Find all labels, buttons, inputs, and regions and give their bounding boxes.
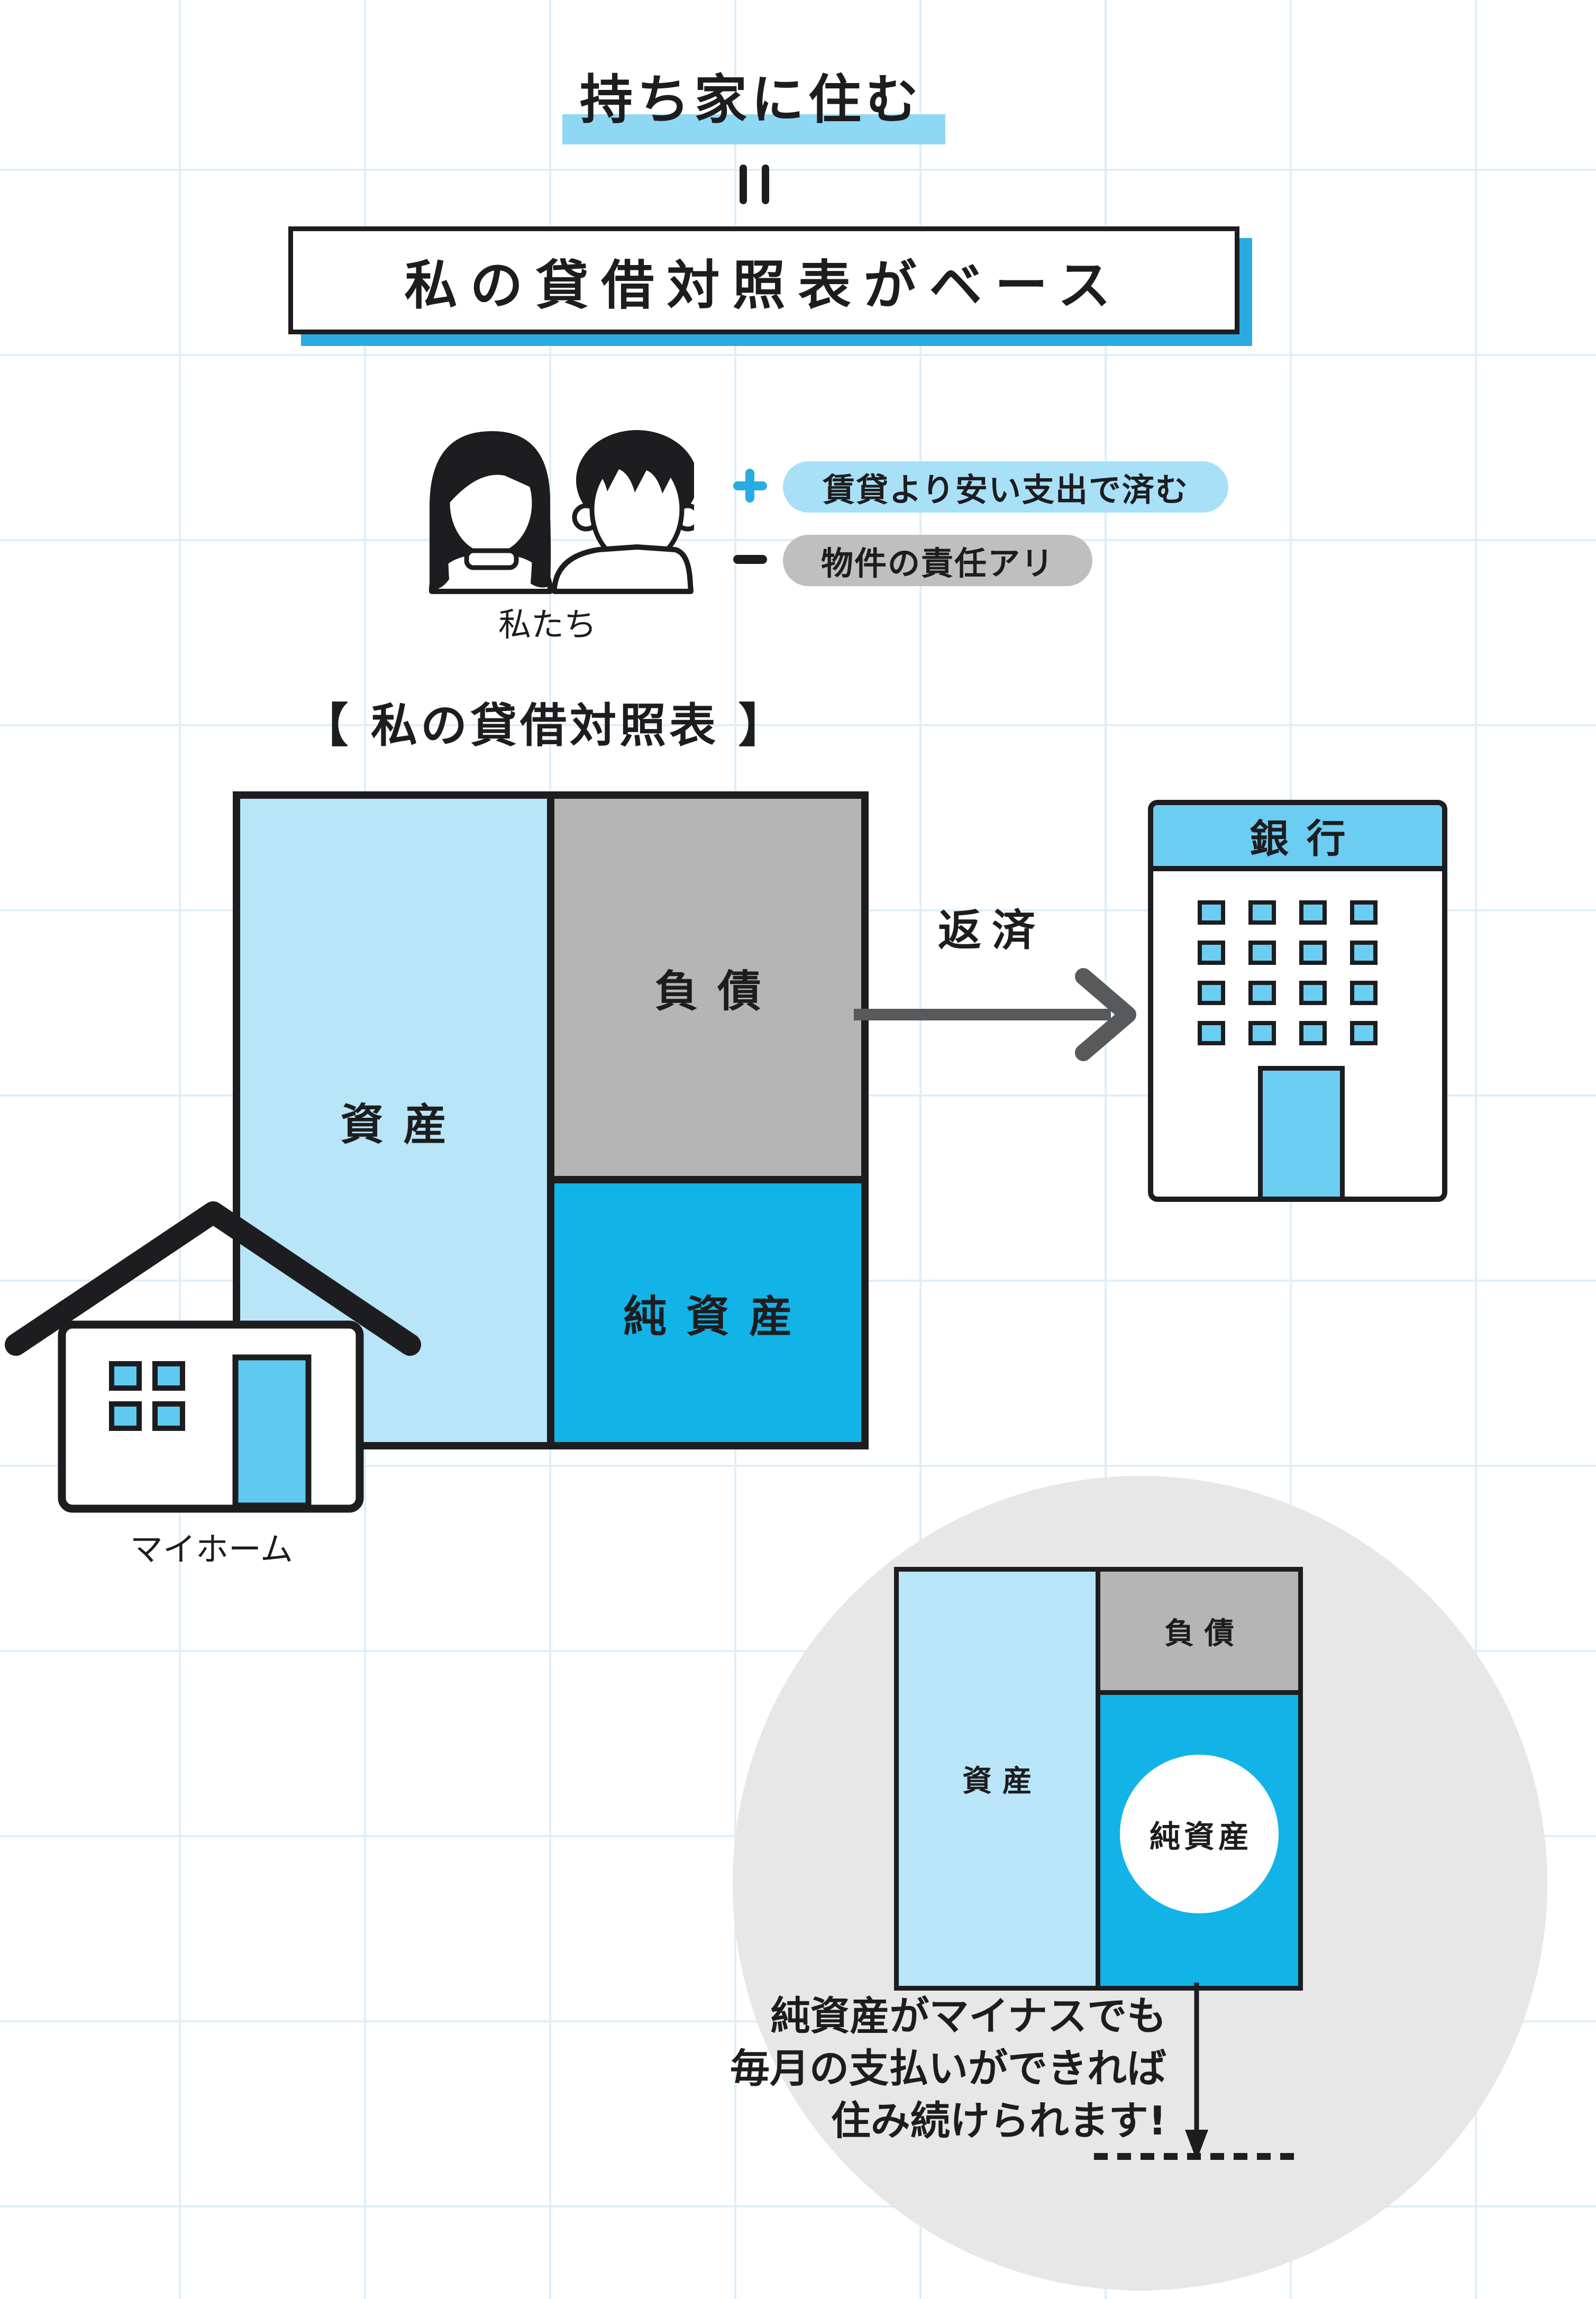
liabilities-label: 負債 [635,956,781,1019]
page-title: 持ち家に住む [534,69,968,131]
right-column: 負債 純資産 [1100,1572,1298,1986]
couple-label: 私たち [452,608,643,641]
net-assets-label: 純資産 [1146,1812,1253,1856]
liabilities-label: 負債 [1154,1610,1245,1653]
bank-window-icon [1248,1021,1276,1045]
net-assets-cell: 純資産 [1100,1695,1298,1986]
con-pill: 物件の責任アリ [783,535,1092,586]
bank-sign: 銀行 [1153,805,1442,871]
bank-window-icon [1299,981,1327,1005]
grid-background: 持ち家に住む 私の貸借対照表がベース 私たち 賃貸より安い支出で済む [0,0,1596,2299]
bank-window-icon [1350,981,1378,1005]
bank-window-icon [1248,941,1276,965]
small-balance-sheet: 資産 負債 純資産 [894,1567,1303,1991]
right-column: 負債 純資産 [554,799,861,1442]
net-assets-circle: 純資産 [1120,1755,1279,1913]
bank-window-icon [1350,941,1378,965]
house-icon [0,1201,434,1523]
bank-window-icon [1248,900,1276,925]
bank-door-icon [1258,1066,1345,1197]
man-icon [554,430,694,591]
liabilities-cell: 負債 [1100,1572,1298,1695]
liabilities-cell: 負債 [554,799,861,1183]
equals-icon [762,165,769,204]
bank-window-icon [1350,900,1378,925]
net-assets-cell: 純資産 [554,1183,861,1442]
pro-pill: 賃貸より安い支出で済む [783,461,1228,513]
couple-icon [398,408,694,595]
bank-window-icon [1198,941,1225,965]
bank-window-icon [1248,981,1276,1005]
note-line: 住み続けられます! [693,2095,1166,2147]
assets-cell: 資産 [899,1572,1100,1986]
subtitle-box: 私の貸借対照表がベース [288,226,1239,334]
plus-icon [745,469,754,503]
assets-label: 資産 [952,1757,1043,1800]
repayment-arrow-icon [846,963,1143,1069]
repayment-label: 返済 [889,906,1095,956]
down-arrow-icon [1164,1978,1233,2165]
note-line: 純資産がマイナスでも [693,1990,1166,2042]
equals-icon [740,165,747,204]
note-line: 毎月の支払いができれば [693,2042,1166,2095]
bank-window-icon [1299,941,1327,965]
minus-icon [733,555,767,564]
net-assets-label: 純資産 [604,1281,812,1344]
bank-window-icon [1350,1021,1378,1045]
bank-window-icon [1299,900,1327,925]
bank-windows [1198,900,1378,1045]
woman-icon [430,431,551,591]
bank: 銀行 [1148,800,1447,1202]
bank-window-icon [1198,1021,1225,1045]
bank-window-icon [1198,981,1225,1005]
assets-label: 資産 [321,1089,467,1152]
bank-window-icon [1299,1021,1327,1045]
dashed-line [1094,2153,1298,2160]
house-label: マイホーム [74,1533,349,1566]
bank-window-icon [1198,900,1225,925]
note-text: 純資産がマイナスでも 毎月の支払いができれば 住み続けられます! [693,1990,1166,2147]
balance-sheet-heading: 【 私の貸借対照表 】 [222,698,868,753]
